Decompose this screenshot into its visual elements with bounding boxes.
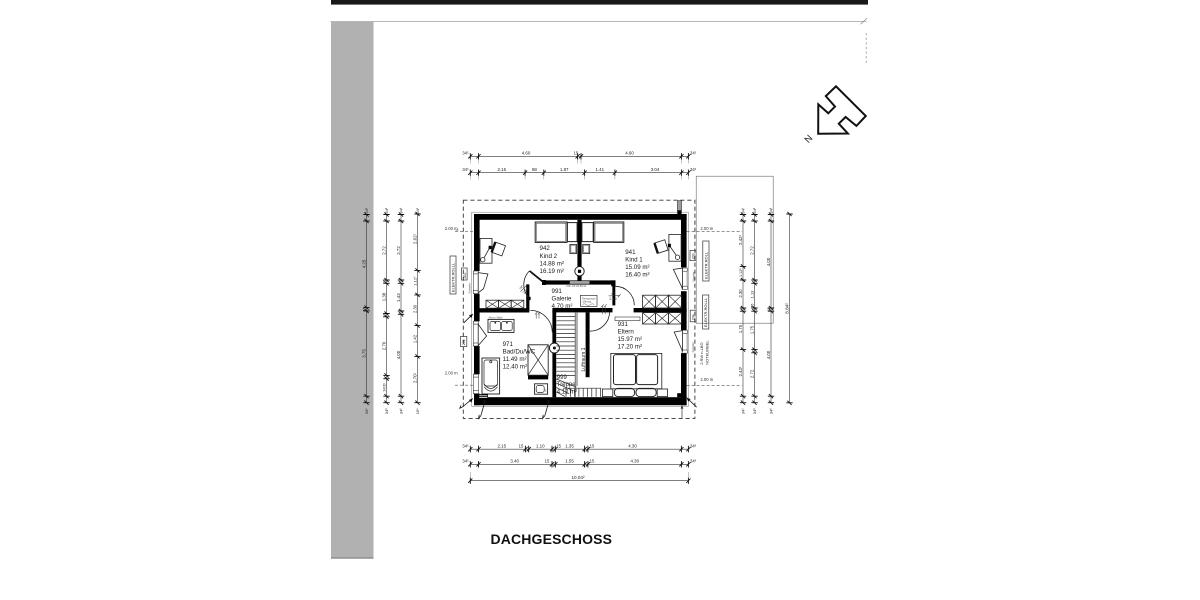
svg-text:2.72: 2.72 xyxy=(396,246,401,255)
svg-text:15: 15 xyxy=(556,443,561,448)
svg-text:34⁶: 34⁶ xyxy=(399,408,404,414)
svg-text:34⁵: 34⁵ xyxy=(462,459,469,464)
svg-text:4.60: 4.60 xyxy=(625,150,634,155)
svg-text:17.20 m²: 17.20 m² xyxy=(618,343,642,350)
svg-text:10.04²: 10.04² xyxy=(571,475,584,480)
svg-text:2.42¹: 2.42¹ xyxy=(738,234,743,245)
svg-text:4.00: 4.00 xyxy=(766,257,771,266)
svg-text:1.42: 1.42 xyxy=(412,334,417,343)
svg-text:15: 15 xyxy=(590,443,595,448)
svg-text:34⁶: 34⁶ xyxy=(384,207,389,213)
svg-text:34⁵: 34⁵ xyxy=(364,207,369,213)
svg-text:34⁵: 34⁵ xyxy=(741,408,746,414)
svg-text:202: 202 xyxy=(463,273,467,279)
svg-text:55: 55 xyxy=(750,304,754,308)
svg-text:4.00: 4.00 xyxy=(396,350,401,359)
svg-text:2.42¹: 2.42¹ xyxy=(738,366,743,377)
svg-text:2.00 m: 2.00 m xyxy=(700,377,713,382)
svg-text:öffnung: öffnung xyxy=(583,300,592,304)
svg-text:4.00: 4.00 xyxy=(766,350,771,359)
svg-text:4.30: 4.30 xyxy=(628,443,637,448)
svg-text:Kind 1: Kind 1 xyxy=(625,256,643,263)
svg-text:16.19 m²: 16.19 m² xyxy=(540,268,564,275)
svg-text:1.35: 1.35 xyxy=(565,443,574,448)
svg-text:1.75: 1.75 xyxy=(738,324,743,333)
svg-text:34⁵: 34⁵ xyxy=(690,167,697,172)
svg-text:15.97 m²: 15.97 m² xyxy=(618,336,642,343)
svg-text:12.40 m²: 12.40 m² xyxy=(503,363,527,370)
svg-text:1.12⁵: 1.12⁵ xyxy=(739,268,743,277)
svg-text:34⁵: 34⁵ xyxy=(462,167,469,172)
svg-text:88: 88 xyxy=(532,167,537,172)
svg-text:11.49 m²: 11.49 m² xyxy=(503,356,527,363)
svg-text:1.10: 1.10 xyxy=(536,443,545,448)
svg-text:34⁵: 34⁵ xyxy=(415,207,420,213)
svg-text:15: 15 xyxy=(455,228,459,232)
svg-text:4.60: 4.60 xyxy=(522,150,531,155)
svg-text:15: 15 xyxy=(767,307,771,311)
svg-text:3.04: 3.04 xyxy=(651,167,660,172)
svg-text:15: 15 xyxy=(382,313,386,317)
svg-text:203: 203 xyxy=(692,253,696,259)
svg-text:15: 15 xyxy=(362,307,366,311)
svg-text:2.00 m: 2.00 m xyxy=(445,371,458,376)
svg-text:Eltern: Eltern xyxy=(618,328,635,335)
svg-text:2.00 m: 2.00 m xyxy=(700,226,713,231)
svg-text:2.62¹: 2.62¹ xyxy=(412,233,417,244)
svg-text:34⁶: 34⁶ xyxy=(690,459,697,464)
svg-text:991: 991 xyxy=(552,288,563,295)
svg-text:Kämpfer: Kämpfer xyxy=(691,342,695,352)
svg-text:ELEKTR.ROLLL: ELEKTR.ROLLL xyxy=(450,262,455,292)
svg-text:201: 201 xyxy=(462,339,466,345)
svg-text:4.70 m²: 4.70 m² xyxy=(552,303,573,310)
svg-text:34⁶: 34⁶ xyxy=(690,444,697,449)
svg-text:1.75: 1.75 xyxy=(749,325,754,334)
svg-text:941: 941 xyxy=(625,249,636,256)
svg-text:1.55: 1.55 xyxy=(565,458,574,463)
svg-text:nd⁵: nd⁵ xyxy=(611,292,616,296)
svg-text:16⁵: 16⁵ xyxy=(415,408,420,414)
svg-text:2.72: 2.72 xyxy=(749,369,754,378)
svg-text:3.75: 3.75 xyxy=(361,349,366,358)
svg-text:971: 971 xyxy=(503,341,514,348)
svg-text:3.40: 3.40 xyxy=(510,458,519,463)
svg-text:ELEKTR.ROLL: ELEKTR.ROLL xyxy=(703,251,708,279)
svg-text:1.13: 1.13 xyxy=(749,290,754,299)
svg-text:2.72: 2.72 xyxy=(381,246,386,255)
svg-text:2.15: 2.15 xyxy=(498,443,507,448)
svg-text:16.40 m²: 16.40 m² xyxy=(625,271,649,278)
svg-text:1.43: 1.43 xyxy=(396,293,401,302)
svg-text:34⁵: 34⁵ xyxy=(690,151,697,156)
svg-text:4.25: 4.25 xyxy=(361,259,366,268)
svg-text:34⁶: 34⁶ xyxy=(769,408,774,414)
svg-text:15: 15 xyxy=(590,458,595,463)
svg-text:15: 15 xyxy=(574,150,579,155)
svg-text:Kämpfer: Kämpfer xyxy=(692,272,696,282)
svg-text:34⁶: 34⁶ xyxy=(769,207,774,213)
svg-text:2.30: 2.30 xyxy=(412,304,417,313)
svg-text:34⁶: 34⁶ xyxy=(752,408,757,414)
svg-text:931: 931 xyxy=(618,321,629,328)
svg-text:2.RW n.LBO: 2.RW n.LBO xyxy=(699,342,704,364)
svg-text:Kind 2: Kind 2 xyxy=(540,253,558,260)
svg-text:2.30: 2.30 xyxy=(738,289,743,298)
svg-text:NOTKURBEL: NOTKURBEL xyxy=(704,340,709,365)
svg-text:1.87: 1.87 xyxy=(560,167,569,172)
svg-text:ELEKTR.ROLLL: ELEKTR.ROLLL xyxy=(703,297,708,327)
svg-text:15: 15 xyxy=(545,458,550,463)
svg-text:34⁵: 34⁵ xyxy=(462,151,469,156)
svg-text:15.09 m²: 15.09 m² xyxy=(625,264,649,271)
svg-text:Luftraum 1: Luftraum 1 xyxy=(581,347,587,371)
svg-text:Fbh.OK 94,80/12: Fbh.OK 94,80/12 xyxy=(567,284,587,288)
svg-text:2.15: 2.15 xyxy=(498,167,507,172)
svg-text:942: 942 xyxy=(540,245,551,252)
svg-text:4.30: 4.30 xyxy=(631,458,640,463)
svg-text:34⁵: 34⁵ xyxy=(364,408,369,414)
svg-text:DACHGESCHOSS: DACHGESCHOSS xyxy=(491,531,613,547)
svg-text:2.70¹: 2.70¹ xyxy=(412,372,417,383)
svg-text:Abst.n.Wahl: Abst.n.Wahl xyxy=(489,315,503,319)
svg-text:2.72: 2.72 xyxy=(749,246,754,255)
svg-text:14.88 m²: 14.88 m² xyxy=(540,260,564,267)
svg-text:15: 15 xyxy=(382,280,386,284)
svg-text:34/30: 34/30 xyxy=(382,383,386,391)
svg-text:204: 204 xyxy=(692,314,696,320)
svg-text:Galerie: Galerie xyxy=(552,296,573,303)
svg-text:8.84²: 8.84² xyxy=(784,303,789,314)
svg-text:Kämpfer: Kämpfer xyxy=(468,283,472,293)
svg-text:34⁶: 34⁶ xyxy=(399,207,404,213)
svg-text:2.14¹: 2.14¹ xyxy=(609,297,618,301)
svg-text:34⁶: 34⁶ xyxy=(752,207,757,213)
svg-text:1.38: 1.38 xyxy=(381,292,386,301)
svg-text:1.12⁵: 1.12⁵ xyxy=(412,276,417,286)
svg-text:2.70: 2.70 xyxy=(381,341,386,350)
svg-text:34⁶: 34⁶ xyxy=(384,408,389,414)
svg-text:34⁵: 34⁵ xyxy=(741,207,746,213)
svg-text:15: 15 xyxy=(519,443,524,448)
svg-text:34⁵: 34⁵ xyxy=(462,444,469,449)
svg-text:1.41: 1.41 xyxy=(596,167,605,172)
